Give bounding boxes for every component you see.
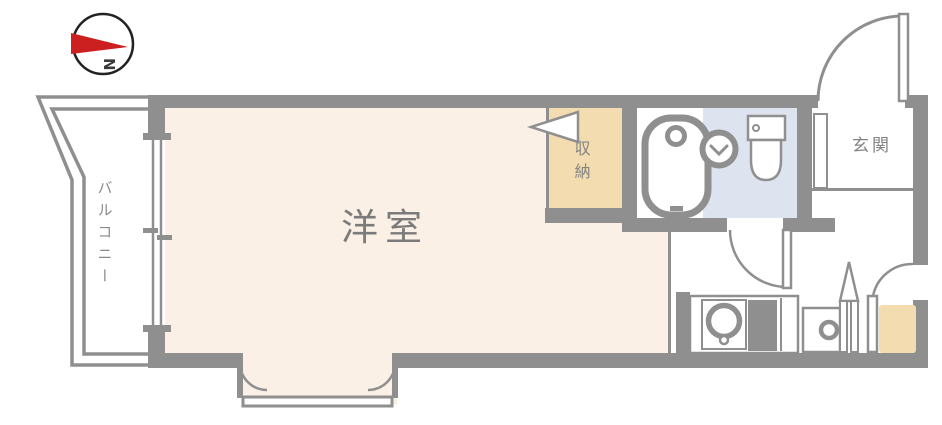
bathroom-door-arc — [730, 230, 791, 288]
washing-machine-icon — [803, 308, 840, 352]
western-room-label: 洋室 — [300, 208, 470, 249]
compass-north-label: N — [100, 58, 118, 71]
balcony-railing — [38, 97, 150, 365]
entrance-step-line — [812, 188, 913, 191]
floor-plan: N バルコニー 洋室 収納 玄関 — [0, 0, 942, 425]
toilet-icon — [748, 116, 785, 180]
storage-label: 収納 — [572, 140, 590, 186]
kitchen-counter — [690, 296, 798, 353]
compass-icon: N — [71, 14, 133, 74]
shoe-cabinet — [814, 114, 827, 188]
bathtub-icon — [645, 118, 708, 215]
balcony-label: バルコニー — [96, 180, 113, 290]
washbasin-icon — [703, 133, 736, 166]
stove-icon — [748, 300, 777, 351]
tall-cabinet — [840, 262, 858, 352]
refrigerator-space — [879, 305, 916, 353]
floor-plan-drawing: N — [0, 0, 942, 425]
entrance-door-arc — [818, 14, 908, 101]
entrance-label: 玄関 — [828, 137, 916, 156]
